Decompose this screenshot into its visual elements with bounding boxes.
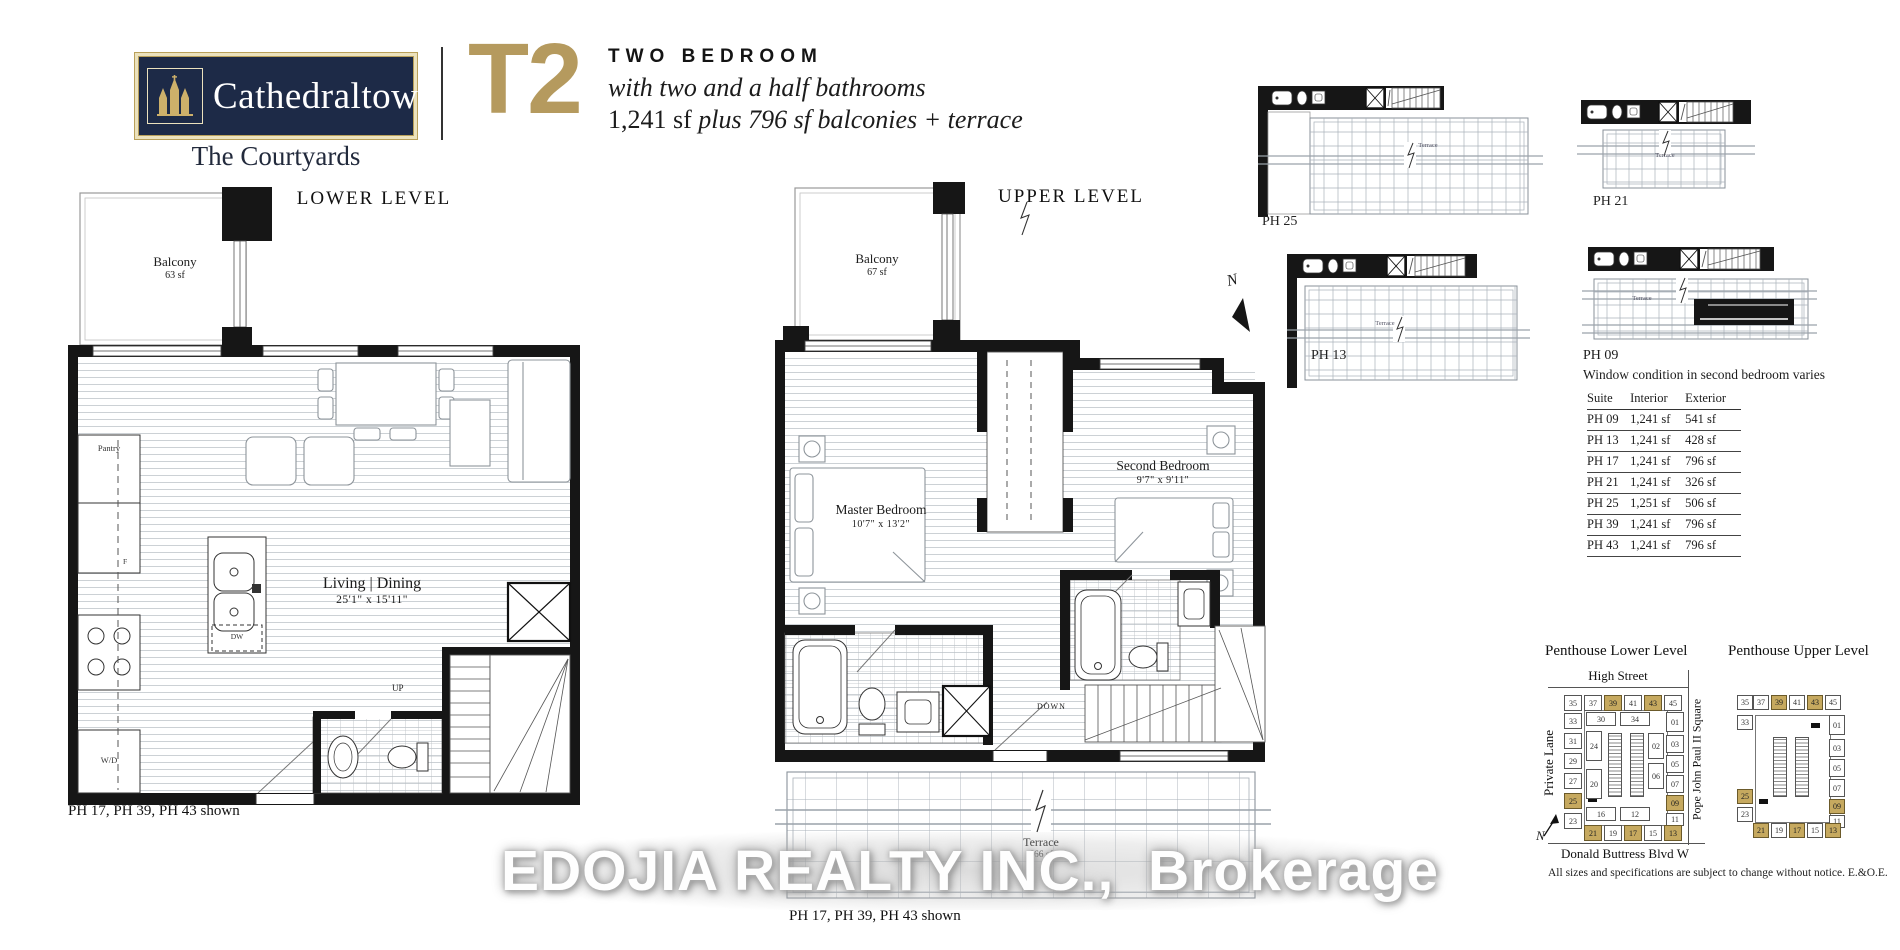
suite-cell: 506 sf (1685, 494, 1741, 515)
unit-size-line: 1,241 sf plus 796 sf balconies + terrace (608, 105, 1168, 135)
keyplan-unit-19: 19 (1771, 823, 1787, 838)
keyplan-unit-15: 15 (1644, 825, 1662, 841)
suite-table-row: PH 211,241 sf326 sf (1587, 473, 1741, 494)
mini-terrace-label: Terrace (1645, 152, 1685, 159)
keyplan-unit-12: 12 (1620, 807, 1650, 821)
keyplan-unit-37: 37 (1584, 695, 1602, 711)
keyplan-building-outline (1755, 715, 1831, 823)
living-dining-label: Living | Dining25'1" x 15'11" (292, 575, 452, 609)
keyplan-unit-16: 16 (1586, 807, 1616, 821)
mini-floorplan-drawing (1258, 72, 1543, 217)
lower-level-title: LOWER LEVEL (244, 188, 504, 210)
suite-cell: PH 21 (1587, 473, 1630, 494)
suite-cell: PH 09 (1587, 410, 1630, 431)
keyplan-unit-39: 39 (1771, 695, 1787, 710)
suite-table-header: Suite (1587, 390, 1630, 410)
suite-table-row: PH 431,241 sf796 sf (1587, 536, 1741, 557)
keyplan-unit-15: 15 (1807, 823, 1823, 838)
north-arrow-icon (1232, 298, 1250, 332)
keyplan-unit-21: 21 (1753, 823, 1769, 838)
keyplan-core (1773, 737, 1787, 797)
keyplan-unit-20: 20 (1586, 769, 1602, 799)
street-donald-buttress: Donald Buttress Blvd W (1555, 846, 1695, 862)
mini-plan-label: PH 13 (1311, 348, 1346, 364)
lower-caption: PH 17, PH 39, PH 43 shown (68, 803, 240, 820)
shaft-icon (508, 583, 570, 641)
lower-balcony-label: Balcony63 sf (115, 255, 235, 283)
keyplan-unit-41: 41 (1789, 695, 1805, 710)
keyplan-lower-title: Penthouse Lower Level (1545, 643, 1687, 660)
suite-cell: 541 sf (1685, 410, 1741, 431)
upper-level-plan: UPPER LEVEL N Balcony67 sf Master Bedroo… (775, 180, 1295, 945)
keyplan-north-label: N (1536, 828, 1545, 844)
keyplan-core (1630, 733, 1644, 797)
unit-code: T2 (468, 22, 581, 137)
keyplan-unit-25: 25 (1564, 793, 1582, 809)
keyplan-unit-01: 01 (1666, 712, 1684, 732)
keyplan-unit-19: 19 (1604, 825, 1622, 841)
suite-table-row: PH 251,251 sf506 sf (1587, 494, 1741, 515)
keyplan-unit-35: 35 (1737, 695, 1753, 710)
keyplan-unit-09: 09 (1829, 799, 1845, 814)
suite-cell: 1,241 sf (1630, 452, 1685, 473)
keyplan-unit-01: 01 (1829, 715, 1845, 735)
stair-void (977, 202, 1073, 532)
suite-cell: PH 25 (1587, 494, 1630, 515)
keyplan-unit-23: 23 (1737, 807, 1753, 822)
street-pope-john-paul: Pope John Paul II Square (1690, 690, 1705, 830)
suite-table-row: PH 091,241 sf541 sf (1587, 410, 1741, 431)
ph09-label: PH 09 (1583, 346, 1825, 365)
unit-type-line: TWO BEDROOM (608, 46, 1168, 68)
window-icon (93, 346, 493, 356)
keyplan-unit-17: 17 (1624, 825, 1642, 841)
suite-cell: 796 sf (1685, 452, 1741, 473)
brand-name: Cathedraltown (213, 75, 437, 118)
suite-cell: PH 13 (1587, 431, 1630, 452)
keyplan-unit-27: 27 (1564, 773, 1582, 789)
keyplan-door (1759, 799, 1768, 804)
brand-logo: Cathedraltown (135, 53, 417, 139)
second-bedroom-label: Second Bedroom9'7" x 9'11" (1103, 458, 1223, 488)
ph09-note: PH 09 Window condition in second bedroom… (1583, 346, 1825, 384)
unit-bath-line: with two and a half bathrooms (608, 73, 1168, 103)
suite-cell: 1,241 sf (1630, 515, 1685, 536)
keyplan-core (1608, 733, 1622, 797)
suite-cell: PH 43 (1587, 536, 1630, 557)
keyplan-unit-07: 07 (1666, 775, 1684, 793)
suite-cell: 1,241 sf (1630, 410, 1685, 431)
keyplan-unit-39: 39 (1604, 695, 1622, 711)
street-line (1548, 843, 1705, 844)
keyplan-unit-34: 34 (1620, 712, 1650, 726)
suite-cell: 796 sf (1685, 515, 1741, 536)
keyplan-unit-41: 41 (1624, 695, 1642, 711)
mini-terrace-label: Terrace (1365, 320, 1405, 327)
upper-level-title: UPPER LEVEL (971, 186, 1171, 208)
keyplan-upper-grid: 3537394143453325230103050709112119171513 (1737, 693, 1849, 839)
upper-caption: PH 17, PH 39, PH 43 shown (789, 908, 961, 925)
keyplan-unit-45: 45 (1825, 695, 1841, 710)
keyplan-unit-13: 13 (1825, 823, 1841, 838)
keyplan-unit-30: 30 (1586, 712, 1616, 726)
keyplan-unit-07: 07 (1829, 779, 1845, 797)
unit-description: TWO BEDROOM with two and a half bathroom… (608, 46, 1168, 135)
keyplan-door (1811, 723, 1820, 728)
keyplan-unit-03: 03 (1829, 739, 1845, 757)
window-note: Window condition in second bedroom varie… (1583, 365, 1825, 384)
floorplan-sheet: Cathedraltown The Courtyards T2 TWO BEDR… (0, 0, 1900, 950)
upper-level-drawing (775, 180, 1295, 940)
keyplan-unit-31: 31 (1564, 733, 1582, 749)
suite-cell: 326 sf (1685, 473, 1741, 494)
suite-table-row: PH 391,241 sf796 sf (1587, 515, 1741, 536)
mini-plan-ph25: Terrace PH 25 (1258, 72, 1543, 232)
suite-cell: PH 17 (1587, 452, 1630, 473)
pantry-label: Pantry (80, 443, 138, 453)
keyplan-unit-37: 37 (1753, 695, 1769, 710)
mini-plan-label: PH 25 (1262, 214, 1297, 230)
suite-cell: 1,241 sf (1630, 536, 1685, 557)
brand-subtitle: The Courtyards (135, 141, 417, 172)
street-private-lane: Private Lane (1541, 723, 1557, 803)
keyplan-unit-29: 29 (1564, 753, 1582, 769)
suite-table-row: PH 171,241 sf796 sf (1587, 452, 1741, 473)
keyplan-unit-35: 35 (1564, 695, 1582, 711)
keyplan-unit-05: 05 (1666, 755, 1684, 773)
suite-cell: PH 39 (1587, 515, 1630, 536)
keyplan-core (1795, 737, 1809, 797)
brokerage-watermark: EDOJIA REALTY INC., Brokerage (505, 832, 1435, 910)
keyplan-unit-17: 17 (1789, 823, 1805, 838)
keyplan-unit-24: 24 (1586, 731, 1602, 761)
powder-room (313, 711, 442, 793)
down-label: DOWN (1037, 702, 1066, 711)
dishwasher-label: DW (214, 632, 260, 641)
suite-cell: 1,251 sf (1630, 494, 1685, 515)
keyplan-footnote: All sizes and specifications are subject… (1548, 867, 1888, 879)
mini-plan-ph21: Terrace PH 21 (1577, 90, 1755, 212)
mini-plan-label: PH 21 (1593, 194, 1628, 210)
header-divider (441, 47, 443, 140)
keyplan-upper-title: Penthouse Upper Level (1728, 643, 1869, 660)
keyplan-unit-33: 33 (1737, 715, 1753, 730)
keyplan-lower-grid: 3537394143453331292725233034242016120102… (1562, 693, 1687, 839)
keyplan-unit-03: 03 (1666, 735, 1684, 753)
keyplan-unit-33: 33 (1564, 713, 1582, 729)
keyplan-unit-09: 09 (1666, 795, 1684, 811)
suite-cell: 796 sf (1685, 536, 1741, 557)
keyplan-unit-13: 13 (1664, 825, 1682, 841)
mini-floorplan-drawing (1582, 243, 1817, 343)
fridge-label: F (123, 557, 127, 566)
suite-table-header: Interior (1630, 390, 1685, 410)
up-label: UP (392, 683, 404, 693)
street-line (1548, 687, 1688, 688)
washer-dryer-label: W/D (80, 755, 138, 765)
suite-table: SuiteInteriorExterior PH 091,241 sf541 s… (1587, 390, 1741, 557)
keyplan-unit-02: 02 (1648, 733, 1664, 759)
mini-terrace-label: Terrace (1622, 295, 1662, 302)
lower-level-plan: LOWER LEVEL Balcony63 sf Pantry F W/D DW… (68, 185, 588, 830)
keyplan-unit-25: 25 (1737, 789, 1753, 804)
stairs-up (442, 647, 580, 793)
street-high: High Street (1548, 668, 1688, 684)
keyplan-unit-21: 21 (1584, 825, 1602, 841)
mini-terrace-label: Terrace (1408, 142, 1448, 149)
suite-cell: 1,241 sf (1630, 431, 1685, 452)
mini-plan-ph13: Terrace PH 13 (1287, 240, 1530, 388)
castle-icon (147, 68, 203, 124)
keyplan-unit-45: 45 (1664, 695, 1682, 711)
keyplan-unit-23: 23 (1564, 813, 1582, 829)
suite-table-row: PH 131,241 sf428 sf (1587, 431, 1741, 452)
mini-plan-ph09: Terrace (1582, 243, 1817, 343)
keyplan-unit-05: 05 (1829, 759, 1845, 777)
keyplan-unit-43: 43 (1644, 695, 1662, 711)
suite-cell: 1,241 sf (1630, 473, 1685, 494)
shaft-icon (943, 686, 990, 736)
suite-table-header: Exterior (1685, 390, 1741, 410)
suite-cell: 428 sf (1685, 431, 1741, 452)
suite-table-header-row: SuiteInteriorExterior (1587, 390, 1741, 410)
upper-balcony-label: Balcony67 sf (817, 252, 937, 280)
mini-floorplan-drawing (1287, 240, 1530, 388)
keyplan-unit-43: 43 (1807, 695, 1823, 710)
master-bedroom-label: Master Bedroom10'7" x 13'2" (820, 502, 942, 532)
mini-floorplan-drawing (1577, 90, 1755, 192)
keyplan-unit-06: 06 (1648, 763, 1664, 789)
